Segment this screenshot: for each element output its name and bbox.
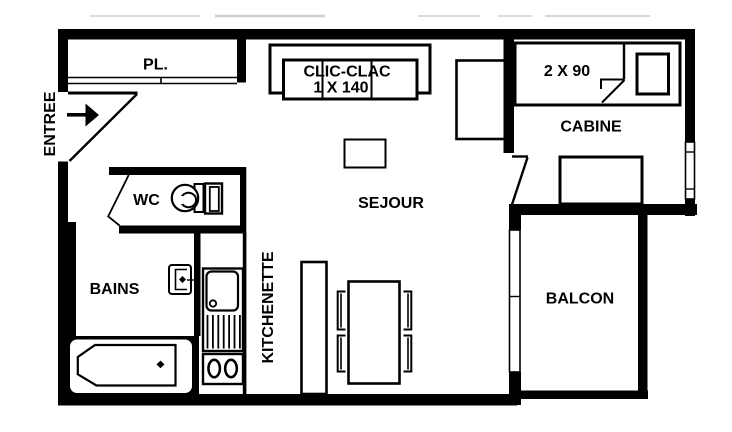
- svg-text:KITCHENETTE: KITCHENETTE: [260, 251, 277, 363]
- svg-text:BAINS: BAINS: [90, 281, 140, 298]
- svg-text:WC: WC: [133, 192, 160, 209]
- svg-text:CABINE: CABINE: [560, 119, 622, 136]
- svg-text:CLIC-CLAC: CLIC-CLAC: [303, 64, 391, 81]
- svg-text:1 X 140: 1 X 140: [313, 80, 368, 97]
- svg-text:SEJOUR: SEJOUR: [358, 195, 424, 212]
- svg-text:BALCON: BALCON: [546, 291, 614, 308]
- svg-text:2 X 90: 2 X 90: [544, 63, 590, 80]
- svg-text:ENTREE: ENTREE: [42, 91, 59, 156]
- svg-text:PL.: PL.: [143, 57, 168, 74]
